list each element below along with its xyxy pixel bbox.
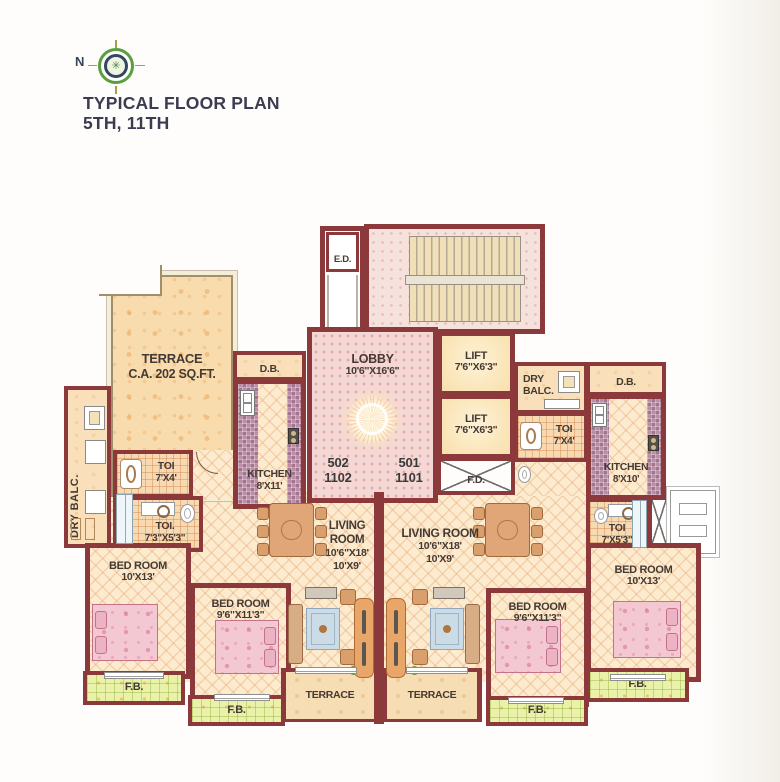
- terrace-main-area: C.A. 202 SQ.FT.: [113, 367, 231, 381]
- lobby-dims: 10'6"X16'6": [312, 366, 433, 378]
- terrace-bottom-left-label: TERRACE: [286, 690, 374, 702]
- toilet-pan-icon: [520, 422, 542, 450]
- compass-inner-ring: ✳: [104, 54, 128, 78]
- room-db-right: D.B.: [586, 362, 666, 396]
- room-lift-lower: LIFT 7'6"X6'3": [437, 394, 515, 459]
- sofa-icon: [288, 604, 303, 664]
- compass-west-tick: [88, 65, 97, 66]
- stair-landing: [405, 275, 525, 285]
- floor-plan-page: { "title": {"line1": "TYPICAL FLOOR PLAN…: [0, 0, 780, 782]
- unit-number-left: 502 1102: [316, 456, 360, 485]
- room-bed-left-outer: BED ROOM 10'X13': [85, 543, 191, 679]
- db-right-label: D.B.: [616, 376, 636, 388]
- window: [632, 500, 647, 548]
- room-kitchen-right: KITCHEN 8'X10': [586, 394, 666, 500]
- living-right-name: LIVING ROOM: [392, 526, 488, 540]
- fb-left-outer-label: F.B.: [87, 681, 181, 693]
- chair-icon: [531, 543, 543, 556]
- room-lift-upper: LIFT 7'6"X6'3": [437, 331, 515, 396]
- room-dry-balc-left: DRY BALC.: [64, 386, 111, 548]
- bed-left-inner-label: BED ROOM 9'6"X11'3": [195, 598, 286, 622]
- terrace-step-notch: [99, 265, 162, 296]
- dry-balc-right-hatch: [544, 399, 580, 409]
- fb-right-inner-label: F.B.: [490, 704, 584, 716]
- dry-balc-right-line2: BALC.: [523, 386, 554, 398]
- chair-icon: [473, 507, 485, 520]
- living-right-dim2: 10'X9': [392, 553, 488, 565]
- room-bed-right-outer: BED ROOM 10'X13': [586, 543, 701, 682]
- ed-label: E.D.: [334, 254, 351, 265]
- wardrobe-icon: [386, 598, 406, 678]
- washing-machine-icon: [84, 406, 105, 430]
- unit-number-right: 501 1101: [386, 456, 432, 485]
- room-dry-balc-right: DRY BALC.: [514, 362, 588, 414]
- living-left-dim1: 10'6"X18': [316, 547, 378, 559]
- stove-icon: [648, 435, 659, 451]
- living-left-label: LIVING ROOM 10'6"X18' 10'X9': [316, 520, 378, 572]
- bed-right-inner-dims: 9'6"X11'3": [491, 613, 584, 625]
- window: [610, 674, 666, 681]
- kitchen-right-dims: 8'X10': [591, 474, 661, 485]
- lobby-name: LOBBY: [312, 352, 433, 366]
- chair-icon: [257, 525, 269, 538]
- unit-right-flat: 501: [386, 456, 432, 471]
- toi-left-upper-name: TOI: [143, 461, 189, 473]
- wash-basin-counter-icon: [141, 502, 175, 516]
- ed-duct-hatch: E.D.: [326, 232, 359, 272]
- toi-left-lower-label: TOI. 7'3"X5'3": [131, 521, 199, 544]
- dining-table-icon: [269, 503, 314, 557]
- compass-east-tick: [135, 65, 145, 66]
- living-left-line1: LIVING: [316, 520, 378, 534]
- toi-right-upper-name: TOI: [544, 424, 584, 436]
- room-bed-right-inner: BED ROOM 9'6"X11'3": [486, 588, 589, 707]
- living-right-dim1: 10'6"X18': [392, 540, 488, 552]
- balcony-connector-hatch: [648, 496, 670, 548]
- chair-icon: [531, 525, 543, 538]
- room-bed-left-inner: BED ROOM 9'6"X11'3": [190, 583, 291, 702]
- armchair-icon: [412, 649, 428, 665]
- fd-label: F.D.: [467, 474, 484, 486]
- window: [295, 667, 357, 674]
- compass-icon: ✳: [98, 48, 134, 84]
- wash-basin-icon: [518, 466, 531, 483]
- chair-icon: [257, 507, 269, 520]
- wardrobe-icon: [354, 598, 374, 678]
- bed-right-inner-label: BED ROOM 9'6"X11'3": [491, 601, 584, 625]
- passage-right: [514, 458, 588, 496]
- room-db-left: D.B.: [233, 351, 306, 381]
- room-kitchen-left: KITCHEN 8'X11': [233, 379, 306, 509]
- dry-balc-left-rack-2: [85, 518, 95, 540]
- unit-right-floor-flat: 1101: [386, 471, 432, 486]
- lift-lower-label: LIFT 7'6"X6'3": [442, 413, 510, 437]
- chair-icon: [531, 507, 543, 520]
- plan-subtitle: 5TH, 11TH: [83, 113, 169, 134]
- chandelier-ring-icon: [356, 403, 388, 435]
- lift-upper-dims: 7'6"X6'3": [442, 362, 510, 374]
- tv-unit-icon: [305, 587, 337, 599]
- dry-balc-left-rack-1: [71, 518, 81, 540]
- terrace-main-label: TERRACE C.A. 202 SQ.FT.: [113, 352, 231, 381]
- kitchen-right-label: KITCHEN 8'X10': [591, 462, 661, 485]
- living-left-line2: ROOM: [316, 534, 378, 548]
- toilet-pan-icon: [120, 459, 142, 489]
- kitchen-left-dims: 8'X11': [238, 481, 301, 492]
- room-fd: F.D.: [437, 457, 515, 495]
- dry-balc-right-label: DRY BALC.: [523, 374, 554, 398]
- lift-lower-dims: 7'6"X6'3": [442, 425, 510, 437]
- passage-left: [191, 450, 233, 500]
- toi-left-upper-label: TOI 7'X4': [143, 461, 189, 484]
- window: [214, 694, 270, 701]
- window: [508, 697, 564, 704]
- bed-icon: [495, 619, 561, 673]
- ed-shaft: [327, 275, 358, 327]
- bed-icon: [613, 601, 681, 658]
- stove-icon: [288, 428, 299, 444]
- tv-unit-icon: [433, 587, 465, 599]
- washing-machine-icon: [558, 371, 580, 393]
- balcony-planter-2: [679, 525, 707, 537]
- toi-right-upper-dims: 7'X4': [544, 436, 584, 447]
- dry-balc-left-hatch-1: [85, 440, 106, 464]
- chair-icon: [315, 507, 327, 520]
- lift-upper-label: LIFT 7'6"X6'3": [442, 350, 510, 374]
- toilet-seat-icon: [594, 508, 608, 524]
- north-compass: N ✳: [75, 40, 149, 94]
- bed-right-outer-label: BED ROOM 10'X13': [591, 564, 696, 588]
- lobby-label: LOBBY 10'6"X16'6": [312, 352, 433, 378]
- unit-left-flat: 502: [316, 456, 360, 471]
- window: [104, 672, 164, 679]
- compass-n-label: N: [75, 54, 84, 69]
- fb-left-inner-label: F.B.: [192, 704, 281, 716]
- living-left-dim2: 10'X9': [316, 560, 378, 572]
- unit-left-floor-flat: 1102: [316, 471, 360, 486]
- rug-icon: [306, 608, 340, 650]
- kitchen-right-name: KITCHEN: [591, 462, 661, 474]
- living-right-label: LIVING ROOM 10'6"X18' 10'X9': [392, 526, 488, 565]
- bed-left-outer-label: BED ROOM 10'X13': [90, 560, 186, 584]
- sink-icon: [592, 403, 607, 427]
- bed-right-outer-dims: 10'X13': [591, 576, 696, 588]
- sink-icon: [240, 390, 255, 416]
- compass-north-tick: [115, 40, 117, 48]
- toi-left-upper-dims: 7'X4': [143, 473, 189, 484]
- plan-title: TYPICAL FLOOR PLAN: [83, 93, 280, 114]
- bed-left-inner-dims: 9'6"X11'3": [195, 610, 286, 622]
- terrace-main-name: TERRACE: [113, 352, 231, 367]
- room-ed: E.D.: [320, 226, 365, 332]
- bed-left-outer-dims: 10'X13': [90, 572, 186, 584]
- kitchen-left-label: KITCHEN 8'X11': [238, 469, 301, 492]
- room-toi-left-upper: TOI 7'X4': [113, 450, 193, 498]
- compass-star-icon: ✳: [107, 57, 125, 75]
- window: [116, 494, 133, 544]
- balcony-planter-1: [679, 503, 707, 515]
- chair-icon: [257, 543, 269, 556]
- bed-icon: [92, 604, 158, 661]
- toi-left-lower-name: TOI.: [131, 521, 199, 533]
- kitchen-left-name: KITCHEN: [238, 469, 301, 481]
- bed-icon: [215, 620, 279, 674]
- dining-table-icon: [485, 503, 530, 557]
- room-toi-right-upper: TOI 7'X4': [514, 412, 588, 462]
- armchair-icon: [412, 589, 428, 605]
- terrace-bottom-right-label: TERRACE: [387, 690, 477, 702]
- window: [406, 667, 468, 674]
- room-staircase: [364, 224, 545, 334]
- sofa-icon: [465, 604, 480, 664]
- rug-icon: [430, 608, 464, 650]
- toi-right-upper-label: TOI 7'X4': [544, 424, 584, 447]
- db-left-label: D.B.: [260, 363, 280, 375]
- dry-balc-left-hatch-2: [85, 490, 106, 514]
- door-arc: [196, 452, 218, 474]
